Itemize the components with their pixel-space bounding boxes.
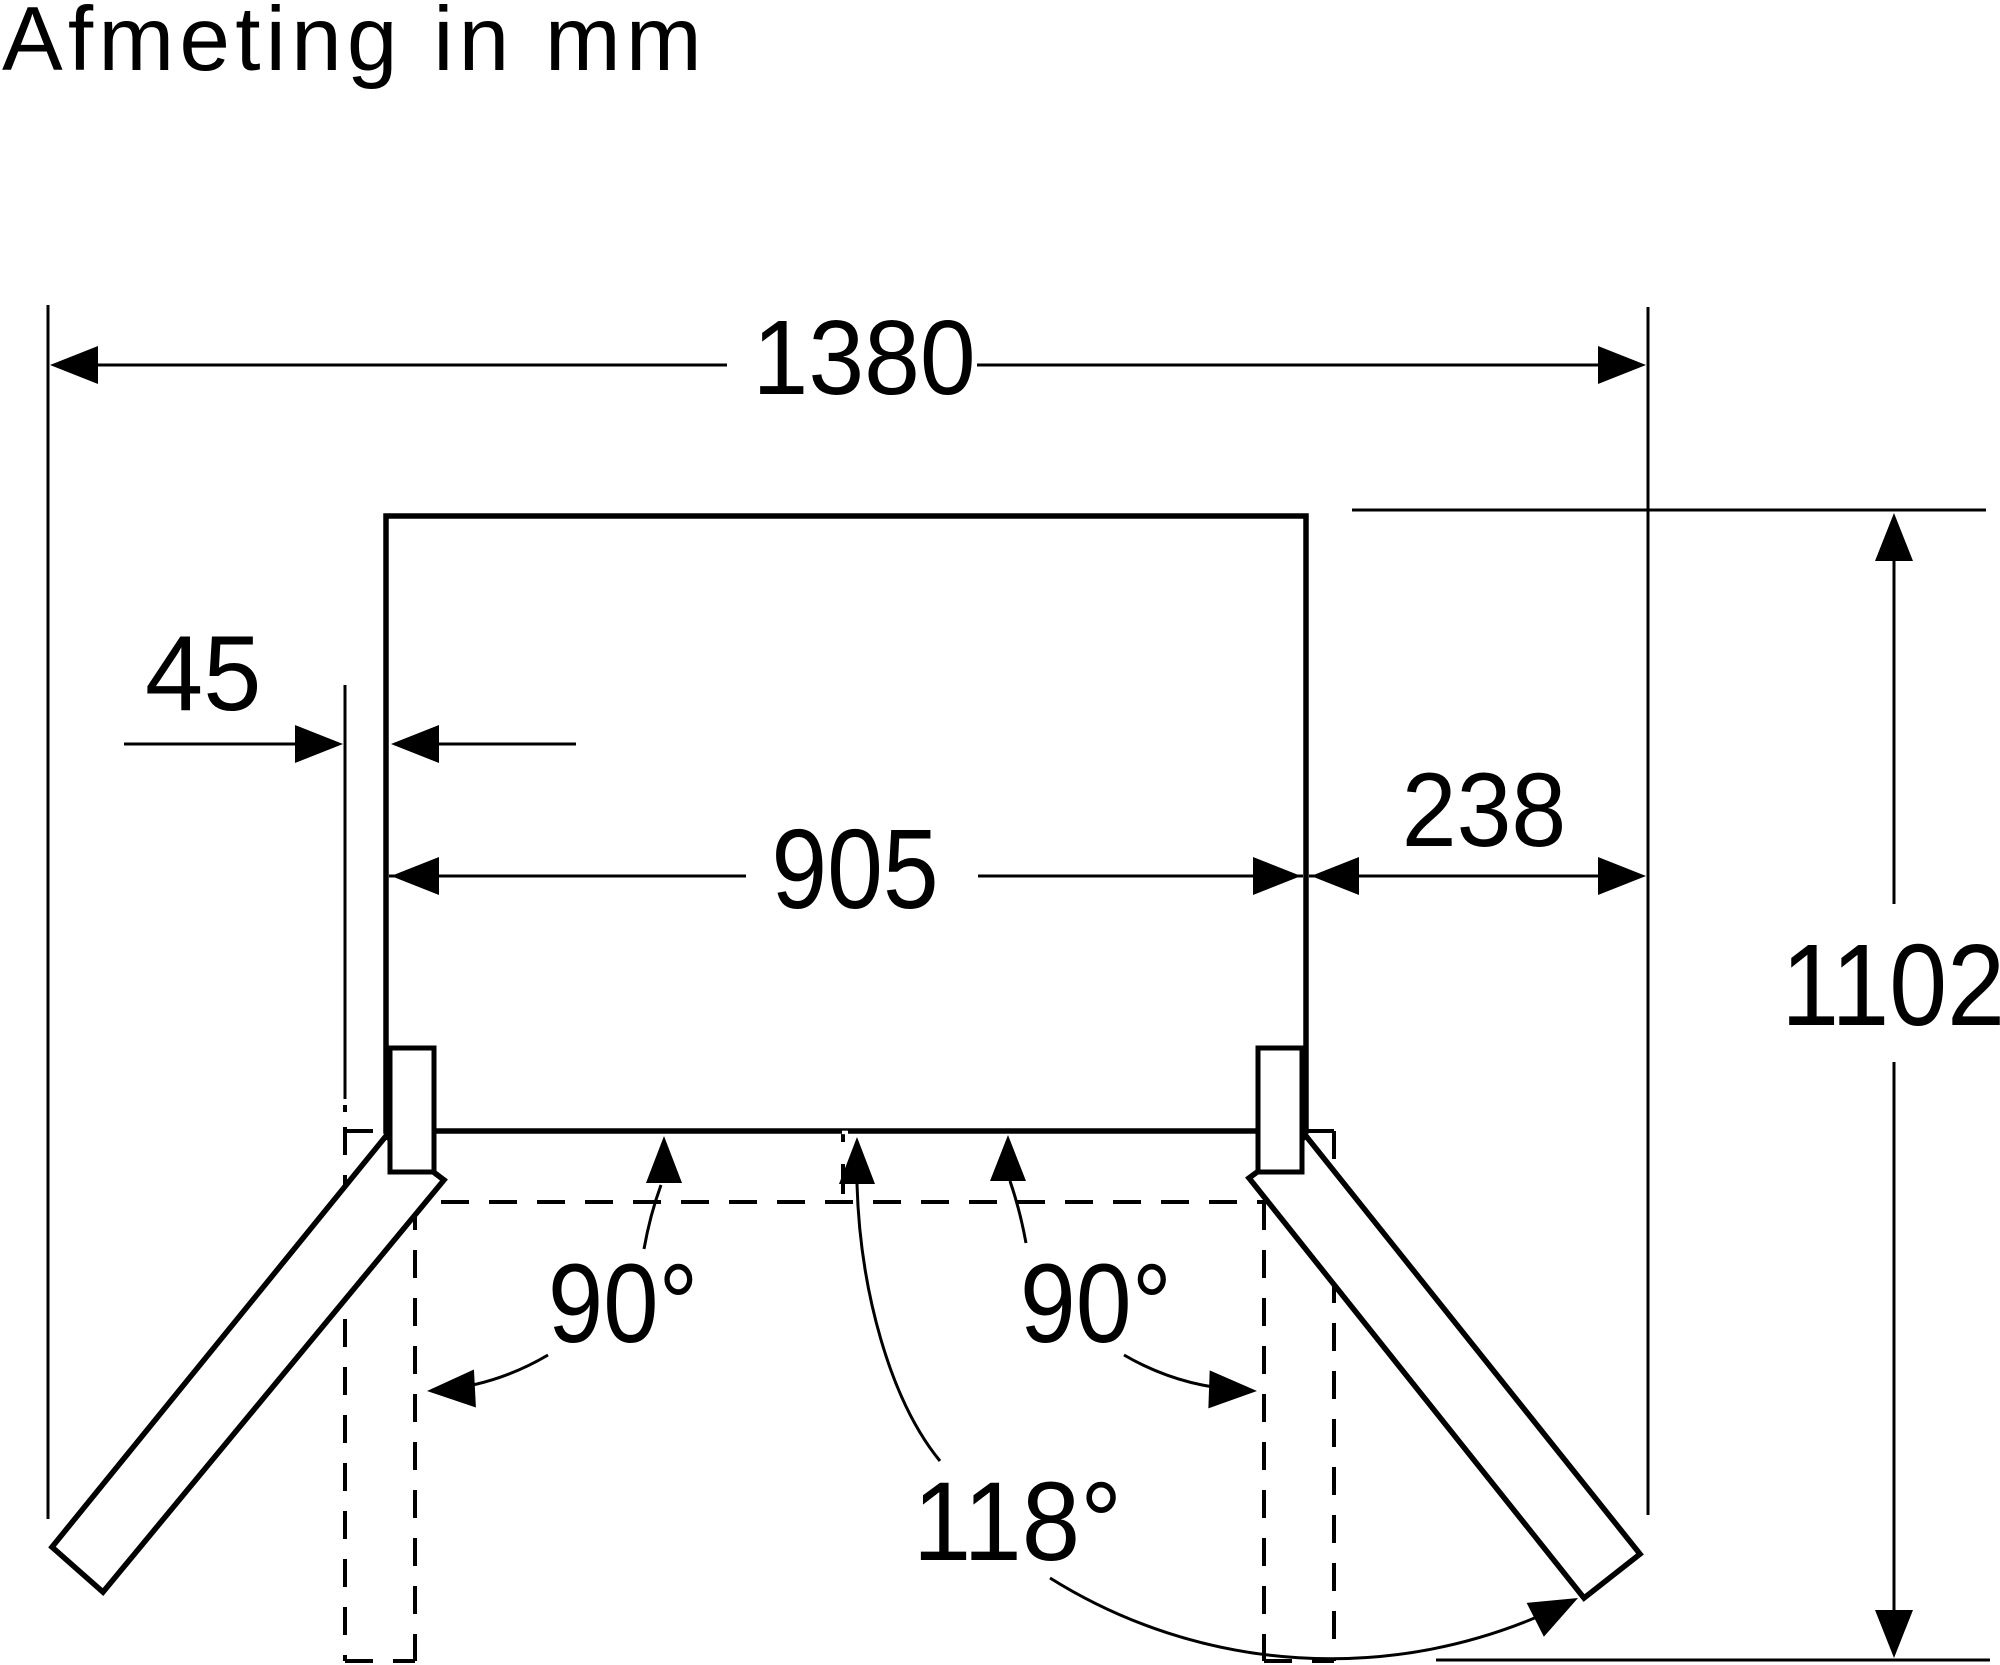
svg-text:45: 45 xyxy=(145,614,261,733)
svg-text:1380: 1380 xyxy=(753,298,976,416)
svg-text:Afmeting in mm: Afmeting in mm xyxy=(2,0,707,90)
svg-text:90°: 90° xyxy=(1020,1241,1172,1366)
svg-text:118°: 118° xyxy=(913,1460,1122,1585)
svg-text:90°: 90° xyxy=(548,1242,698,1367)
svg-text:905: 905 xyxy=(771,805,938,932)
svg-text:238: 238 xyxy=(1402,751,1566,869)
svg-text:1102: 1102 xyxy=(1781,921,2000,1050)
